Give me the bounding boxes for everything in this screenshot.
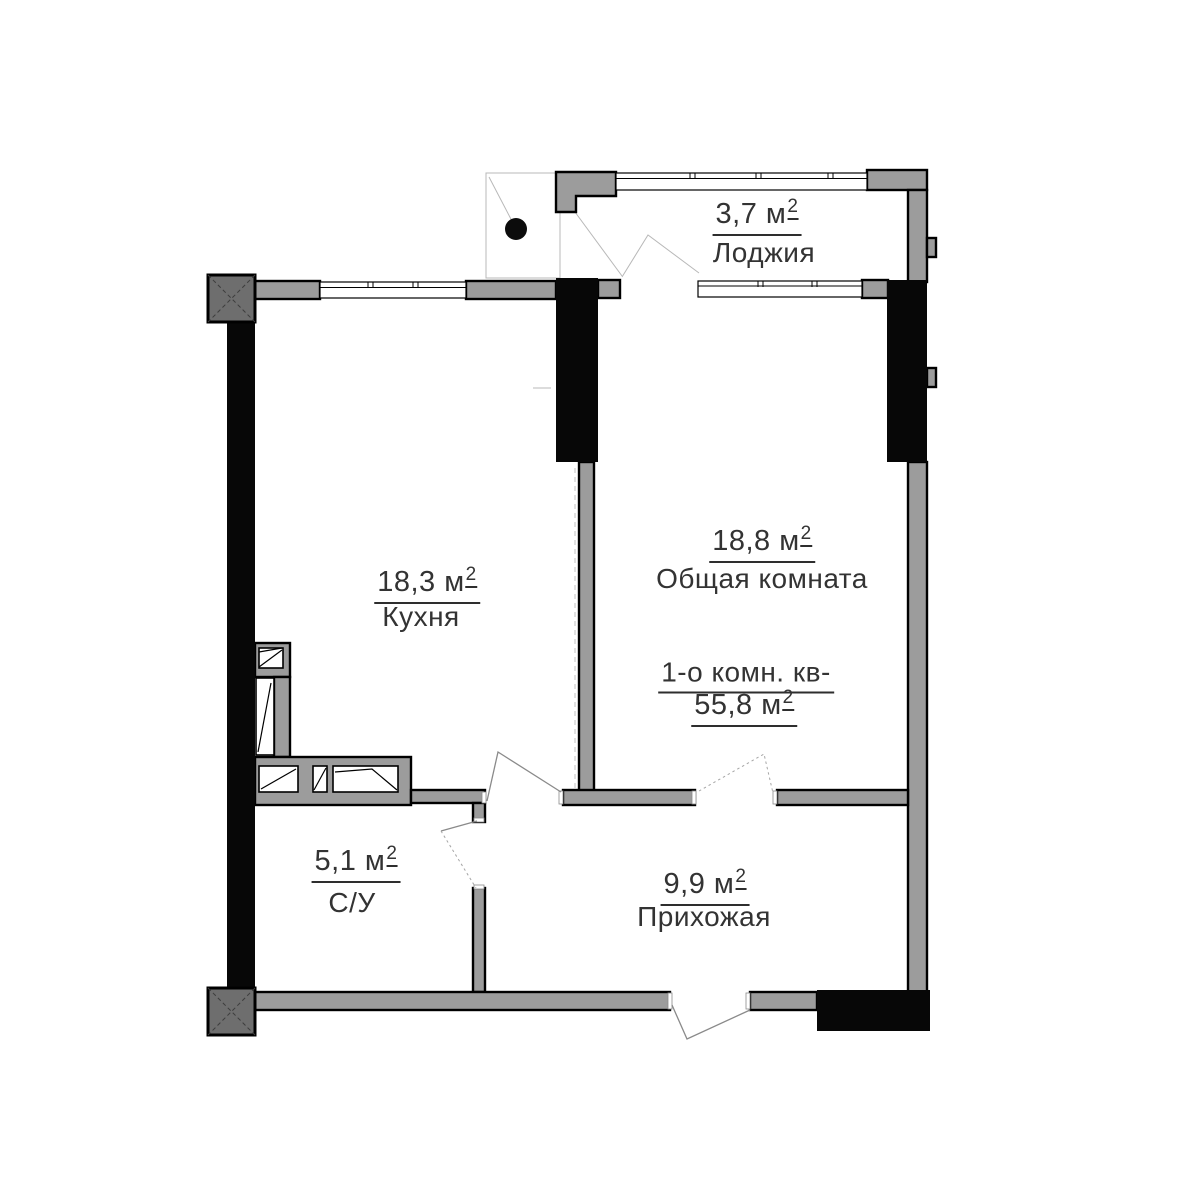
wall-kitchen-top-left <box>255 281 320 299</box>
balcony-slab-outline <box>486 173 622 789</box>
wall-balcony-sill-right <box>862 280 888 298</box>
kitchen-name-label: Кухня <box>382 601 459 633</box>
bathroom-name-label: С/У <box>328 887 375 919</box>
entrance-door-swing <box>672 1005 750 1039</box>
apartment-title-label: 1-о комн. кв- <box>658 657 834 694</box>
loggia-name-label: Лоджия <box>713 237 815 269</box>
crossed-column-top-left <box>208 275 255 322</box>
balcony-window <box>698 281 862 297</box>
wall-bottom-right <box>750 992 817 1010</box>
kitchen-door-swing <box>487 752 561 801</box>
living-area-label: 18,8 м2 <box>709 525 815 563</box>
wall-loggia-top-right-corner <box>867 170 927 190</box>
kitchen-area-label: 18,3 м2 <box>374 566 480 604</box>
wall-kitchen-bottom <box>411 790 485 803</box>
apartment-total-area-label: 55,8 м2 <box>691 689 797 727</box>
wall-right-tab-upper <box>927 238 936 257</box>
living-name-label: Общая комната <box>656 563 868 595</box>
floor-plan-page: 3,7 м2 Лоджия 18,8 м2 Общая комната 1-о … <box>0 0 1181 1181</box>
wall-balcony-sill-left <box>598 280 620 298</box>
wall-loggia-right <box>908 190 927 282</box>
wall-right-outer <box>908 462 927 992</box>
wall-left-outer <box>227 322 255 988</box>
crossed-column-bottom-left <box>208 988 255 1035</box>
kitchen-window <box>320 282 466 298</box>
loggia-top-glazing <box>616 173 867 190</box>
wall-hallway-top-right <box>777 790 908 805</box>
loggia-area-label: 3,7 м2 <box>713 198 802 236</box>
wall-bathroom-partition <box>473 888 485 992</box>
floor-plan-drawing <box>0 0 1181 1181</box>
bathroom-area-label: 5,1 м2 <box>312 845 401 883</box>
wall-loggia-corner-block <box>556 172 616 212</box>
wall-bottom-left <box>255 992 670 1010</box>
wall-kitchen-top-right <box>466 281 556 299</box>
bathroom-door-arc <box>441 831 476 888</box>
column-right <box>887 280 927 462</box>
wall-kitchen-living-partition <box>579 462 594 792</box>
column-kitchen-living <box>556 278 598 462</box>
floor-drain-icon <box>505 218 527 240</box>
vent-shaft-vertical <box>274 677 290 757</box>
living-room-door-swing <box>699 754 773 793</box>
block-entrance-right <box>817 990 930 1031</box>
wall-right-tab-lower <box>927 368 936 387</box>
bathroom-door-leaf <box>441 821 477 831</box>
wall-hallway-top-left <box>563 790 695 805</box>
hallway-name-label: Прихожая <box>637 901 771 933</box>
balcony-door-swing <box>622 235 699 277</box>
